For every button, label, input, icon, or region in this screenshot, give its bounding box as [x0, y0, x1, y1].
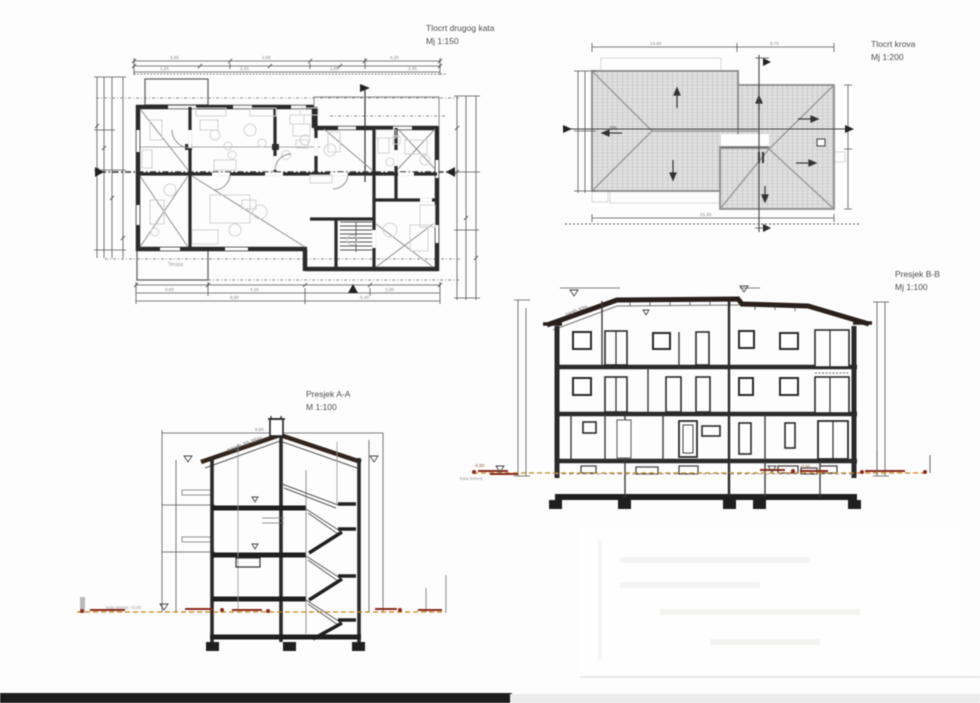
svg-text:4,20: 4,20 — [390, 55, 399, 60]
svg-text:Tlocrt drugog kata: Tlocrt drugog kata — [426, 23, 495, 33]
svg-text:14,60: 14,60 — [650, 41, 662, 46]
svg-text:-0,90: -0,90 — [800, 464, 811, 469]
svg-text:Presjek A-A: Presjek A-A — [306, 389, 351, 399]
svg-text:Terasa: Terasa — [168, 262, 183, 268]
svg-text:1,85: 1,85 — [330, 66, 339, 71]
svg-text:Presjek B-B: Presjek B-B — [895, 269, 940, 279]
svg-text:9,70: 9,70 — [770, 41, 779, 46]
svg-text:24,30: 24,30 — [700, 212, 712, 217]
svg-text:3,95: 3,95 — [170, 55, 179, 60]
svg-text:5,40: 5,40 — [360, 295, 369, 300]
svg-text:3,60: 3,60 — [165, 287, 174, 292]
svg-text:2,85: 2,85 — [262, 55, 271, 60]
svg-text:2,40: 2,40 — [408, 66, 417, 71]
svg-text:Tlocrt krova: Tlocrt krova — [871, 39, 916, 49]
svg-text:8,90: 8,90 — [230, 295, 239, 300]
svg-text:3,30: 3,30 — [385, 287, 394, 292]
svg-text:kota terena: kota terena — [460, 476, 483, 481]
svg-text:Mj 1:200: Mj 1:200 — [871, 52, 904, 62]
svg-text:9,60: 9,60 — [255, 427, 264, 432]
svg-text:M 1:100: M 1:100 — [306, 402, 337, 412]
svg-text:2,10: 2,10 — [240, 66, 249, 71]
svg-text:-0,90: -0,90 — [474, 463, 485, 468]
svg-text:Mj 1:100: Mj 1:100 — [895, 282, 928, 292]
svg-text:4,15: 4,15 — [250, 287, 259, 292]
svg-text:1,20: 1,20 — [160, 66, 169, 71]
svg-text:Mj 1:150: Mj 1:150 — [426, 36, 459, 46]
